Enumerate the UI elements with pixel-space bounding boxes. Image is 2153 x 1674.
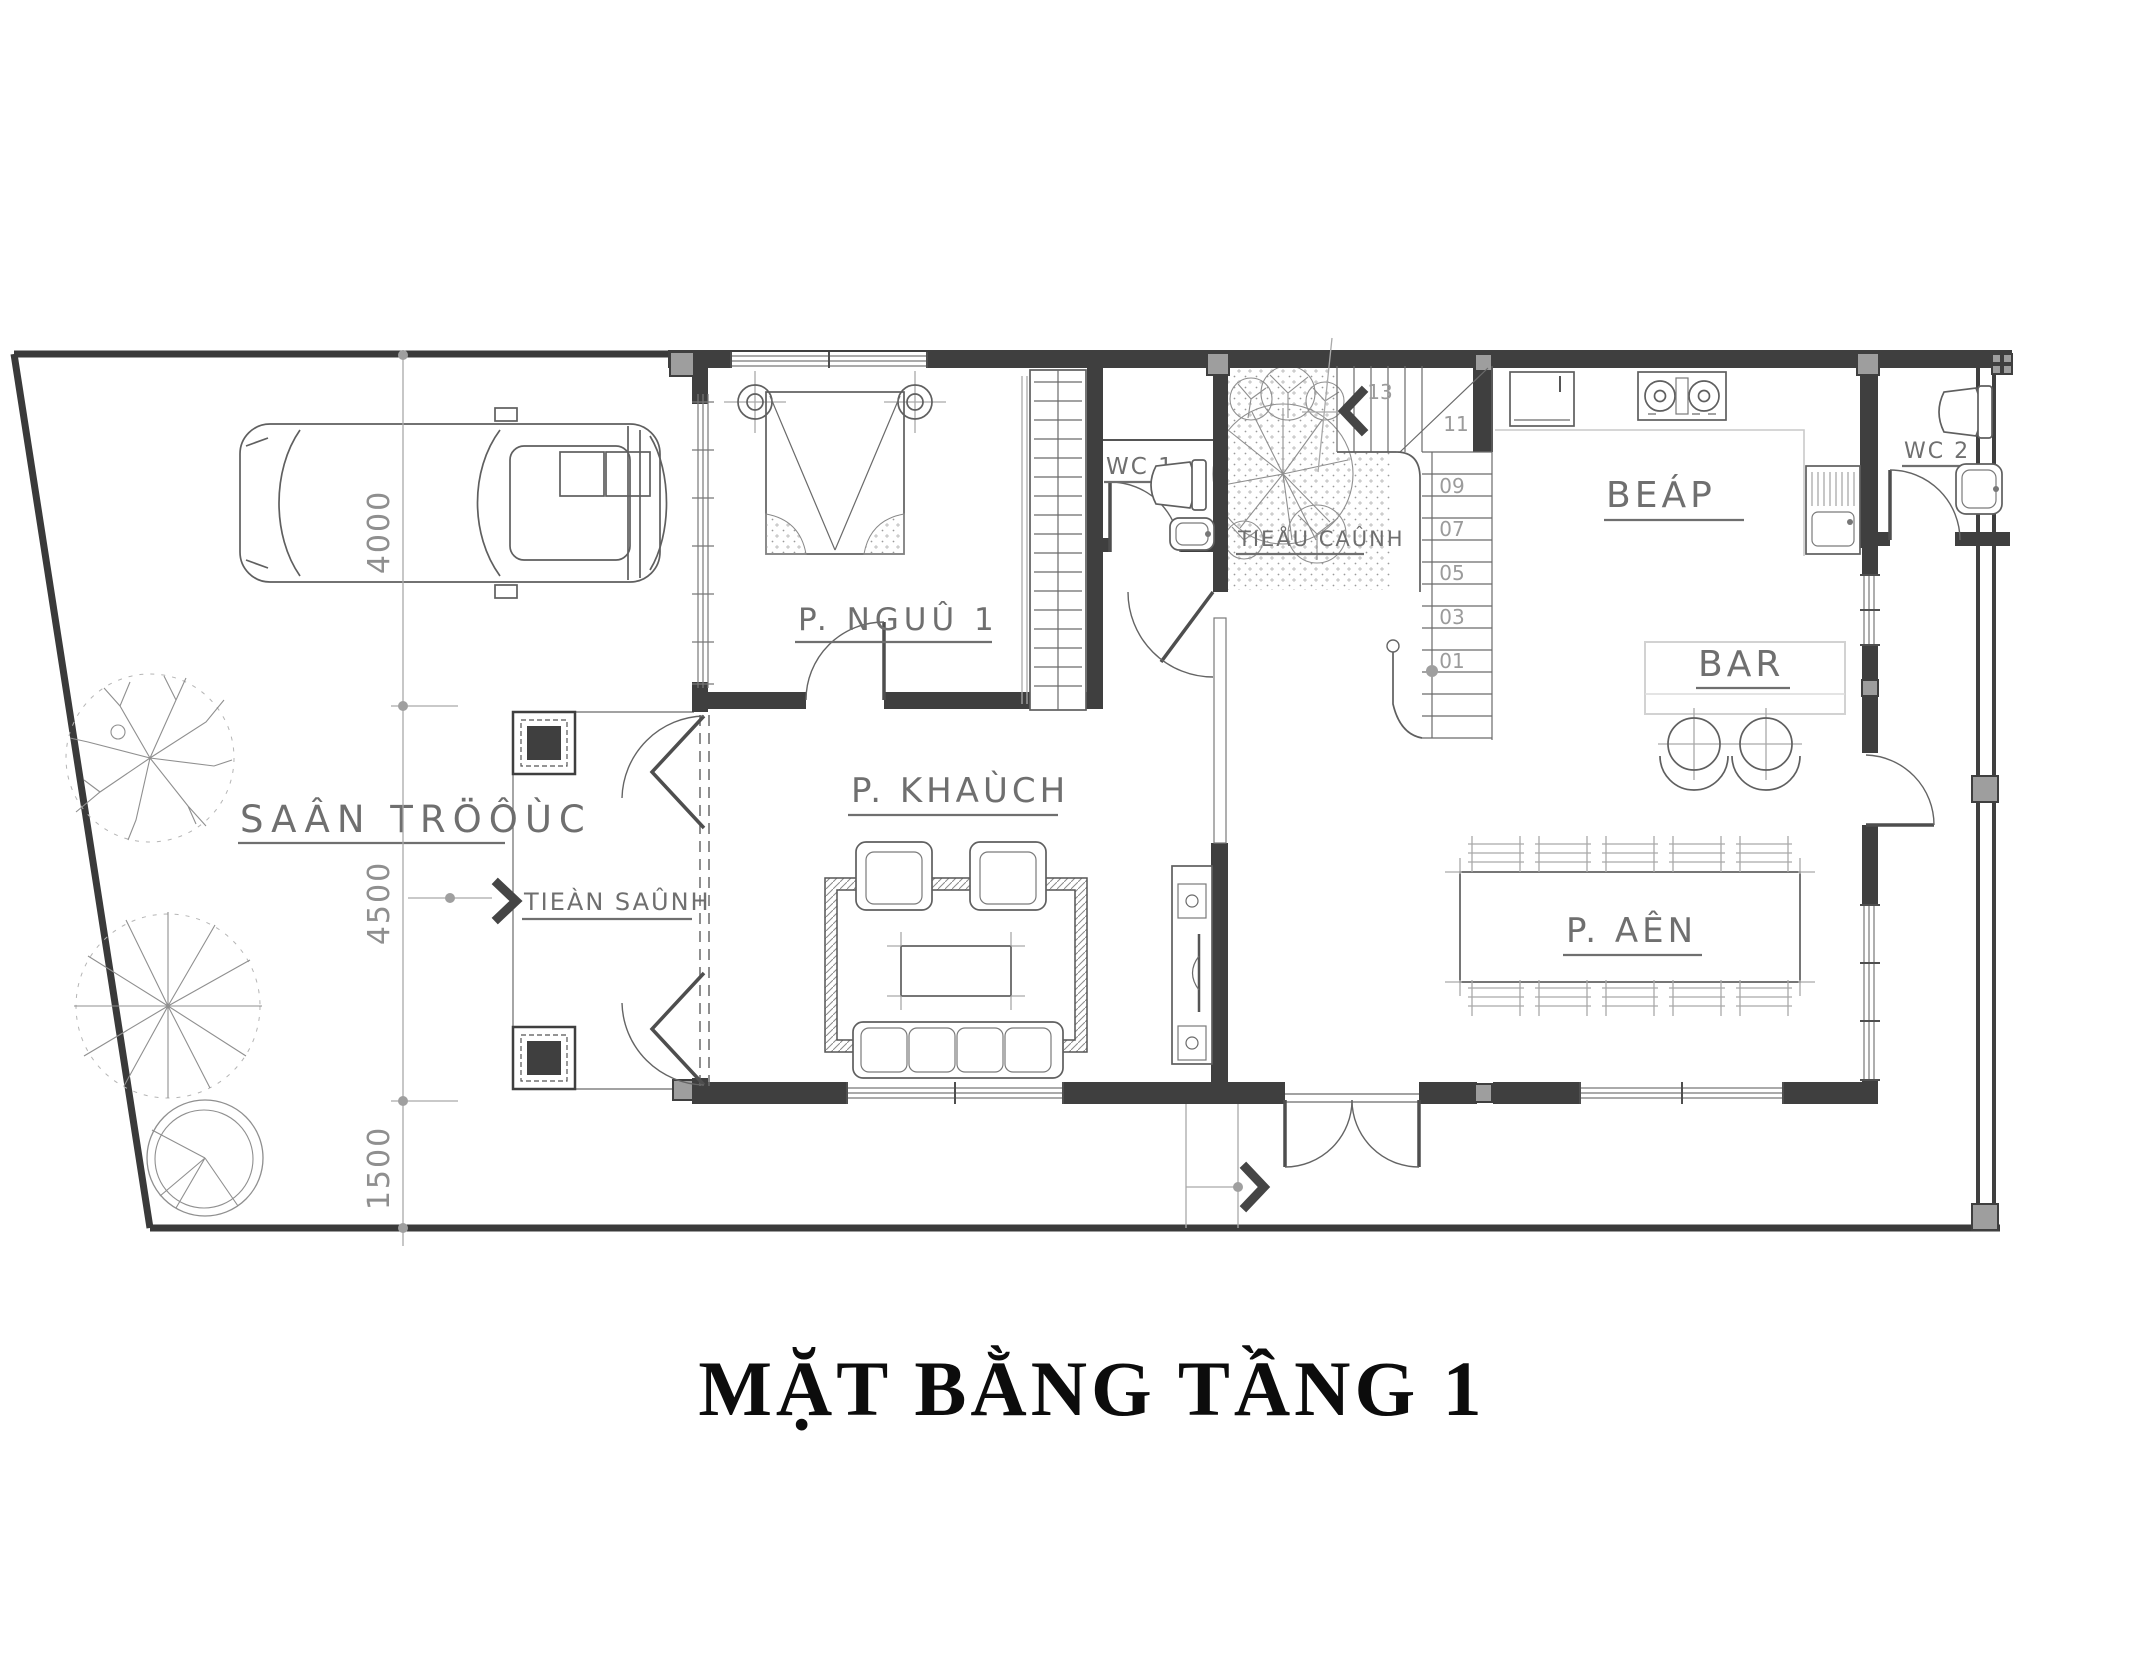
floor-plan-page: SAÂN TRÖÔÙC 4000 4500 1500 TIEÅU CAÛNH [0,0,2153,1674]
entry-arrow-icon [1246,1168,1264,1206]
window [731,352,927,368]
plan-title: MẶT BẰNG TẦNG 1 [698,1345,1485,1432]
foyer-label: TIEÀN SAÛNH [523,886,711,916]
wc2-door [1890,470,1960,540]
dimension-label-4000: 4000 [362,490,397,574]
stove-icon [1638,372,1726,420]
front-yard-label: SAÂN TRÖÔÙC [240,797,592,841]
stair-step-number: 09 [1439,474,1464,498]
car-icon [240,408,667,598]
kitchen: BEÁP [1495,372,1860,556]
dining-label: P. AÊN [1566,910,1697,951]
porch-column [513,712,575,774]
coffee-table-icon [887,932,1025,1010]
wc2: WC 2 [1902,386,2002,514]
front-yard-tree-icon [66,674,234,842]
armchair-icon [970,842,1046,910]
stair-up-arrow-icon [1344,392,1362,430]
bedroom: P. NGUÛ 1 [724,370,1086,710]
floor-plan-drawing: SAÂN TRÖÔÙC 4000 4500 1500 TIEÅU CAÛNH [0,0,2153,1674]
round-planter-icon [147,1100,263,1216]
window [847,1082,1063,1104]
stair-step-number: 01 [1439,649,1464,673]
bar-label: BAR [1698,644,1784,685]
bar-stool-icon [1658,708,1730,790]
hall-door [1128,592,1213,677]
living-label: P. KHAÙCH [851,770,1069,811]
tv-cabinet-icon [1172,866,1212,1064]
bed-icon [724,371,946,554]
sofa-icon [853,1022,1063,1078]
porch-column [513,1027,575,1089]
window [1580,1082,1783,1104]
entry-walkway [1186,1104,1243,1228]
bedroom-label: P. NGUÛ 1 [798,601,999,638]
kitchen-label: BEÁP [1606,474,1716,516]
sink-icon [1956,464,2002,514]
dimension-label-1500: 1500 [362,1126,397,1210]
main-entry-doors [1246,1094,1419,1206]
kitchen-sink-icon [1806,466,1860,554]
toilet-icon [1939,386,1992,438]
window [1860,905,1880,1080]
armchair-icon [856,842,932,910]
stair-step-number: 05 [1439,561,1464,585]
side-door [1866,755,1934,825]
wardrobe-icon [1022,370,1086,710]
stair-step-number: 03 [1439,605,1464,629]
sink-icon [1170,518,1214,550]
fence-column [1972,776,1998,802]
window [692,394,714,688]
wc1: WC 1 [1103,440,1214,550]
fridge-icon [1510,372,1574,426]
dining-room: P. AÊN [1445,836,1815,1016]
dimension-label-4500: 4500 [362,861,397,945]
toilet-icon [1151,460,1206,510]
stair-step-number: 07 [1439,517,1464,541]
foyer-porch: TIEÀN SAÛNH [408,712,711,1089]
window [1860,575,1880,645]
bar: BAR [1645,642,1845,790]
stair-step-number: 11 [1443,412,1468,436]
wc2-label: WC 2 [1904,439,1970,464]
stair-step-number: 13 [1367,380,1392,404]
fence-column [1972,1204,1998,1230]
bar-stool-icon [1730,708,1802,790]
garden-label: TIEÅU CAÛNH [1237,525,1405,551]
divider-cabinet [1214,618,1226,843]
